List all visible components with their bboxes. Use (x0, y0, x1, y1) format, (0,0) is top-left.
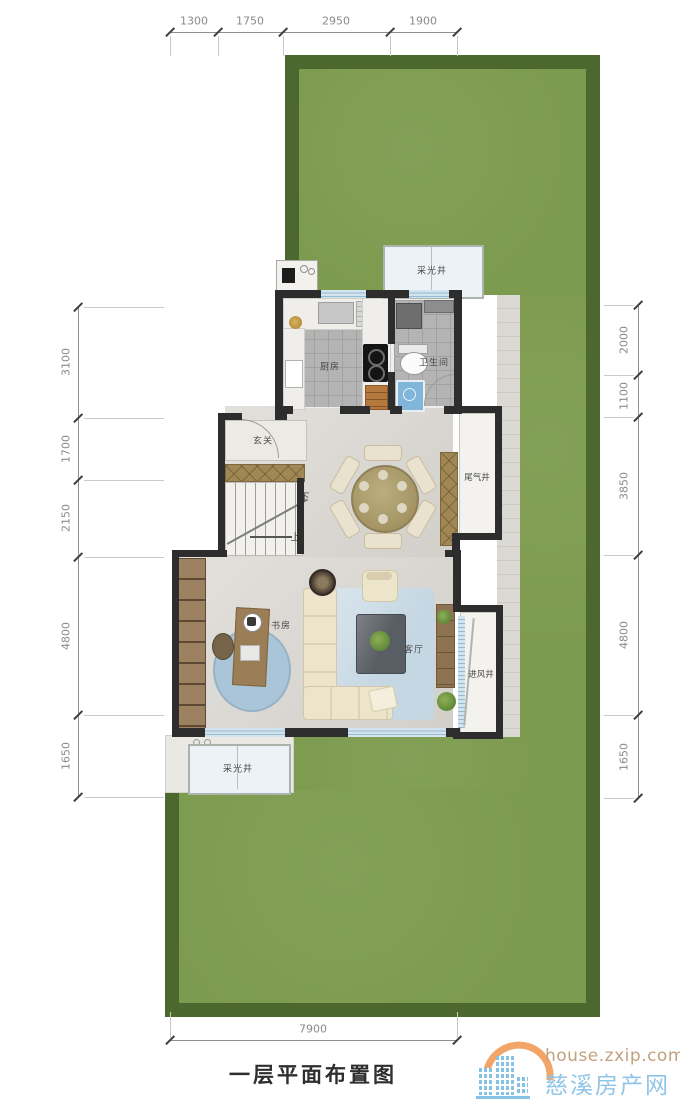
dim-ext (170, 36, 171, 56)
room-label-living: 客厅 (404, 643, 424, 656)
plate (359, 503, 369, 513)
dim-label: 3850 (618, 472, 631, 500)
plate (397, 503, 407, 513)
bathroom-window (409, 290, 450, 298)
washer-drum (403, 388, 416, 401)
dim-label: 7900 (299, 1023, 327, 1036)
room-label-exhaust-shaft: 尾气井 (464, 471, 490, 483)
stairs (225, 482, 303, 556)
burner (368, 349, 385, 366)
living-window-left (205, 728, 287, 737)
dim-ext (170, 1012, 171, 1038)
dining-chair (364, 533, 402, 549)
stairs-arrow (250, 536, 292, 538)
dim-label: 2950 (322, 15, 350, 28)
living-window-right (348, 728, 447, 737)
wall (297, 478, 304, 554)
logo-url-text: house.zxip.com (545, 1046, 680, 1066)
hedge-left-upper (285, 55, 299, 295)
logo-baseline (476, 1096, 530, 1099)
dim-label: 1650 (60, 742, 73, 770)
wall (452, 533, 502, 540)
hedge-bottom (165, 1003, 600, 1017)
dim-label: 1300 (180, 15, 208, 28)
dim-ext (604, 305, 634, 306)
dim-ext (84, 307, 164, 308)
wall (285, 728, 349, 737)
armchair-back (366, 572, 392, 580)
hedge-left-lower (165, 790, 179, 1017)
wall (390, 406, 402, 414)
dim-line-bottom (170, 1040, 457, 1041)
dim-label: 1900 (409, 15, 437, 28)
desk-monitor (247, 617, 256, 626)
logo-site-text: 慈溪房产网 (545, 1066, 670, 1100)
page-title: 一层平面布置图 (229, 1059, 397, 1089)
wall (275, 290, 283, 415)
bathroom-vanity (396, 303, 422, 329)
room-label-bathroom: 卫生间 (419, 356, 449, 369)
chimney (282, 268, 295, 283)
wall (388, 296, 395, 344)
kitchen-window (321, 290, 367, 298)
light-well-top-label: 采光井 (417, 264, 447, 277)
bathroom-shelf (424, 300, 454, 313)
bookshelf (176, 558, 206, 734)
wall (388, 372, 395, 410)
dim-label: 1650 (618, 743, 631, 771)
desk-paper (240, 645, 260, 661)
kitchen-sink (318, 302, 354, 324)
dim-ext (84, 797, 164, 798)
dim-ext (390, 36, 391, 56)
plate (378, 514, 388, 524)
side-planter (309, 569, 336, 596)
shoe-cabinet (225, 464, 305, 482)
floor-plant (437, 692, 456, 711)
dim-ext (218, 36, 219, 56)
dim-ext (84, 557, 164, 558)
light-well-bottom-label: 采光井 (223, 762, 253, 775)
dim-label: 4800 (60, 622, 73, 650)
plate (359, 481, 369, 491)
dim-label: 2150 (60, 504, 73, 532)
logo-building (517, 1077, 528, 1095)
logo-building (496, 1056, 515, 1095)
dim-ext (604, 715, 634, 716)
office-chair (212, 633, 234, 660)
dim-ext (604, 798, 634, 799)
dining-cabinet (440, 452, 458, 546)
dim-label: 2000 (618, 326, 631, 354)
dim-ext (604, 417, 634, 418)
pan (289, 316, 302, 329)
vent-dot (300, 265, 308, 273)
wall (172, 550, 227, 557)
floor-plan-page: 厨房 卫生间 玄关 下 上 餐厅 尾气井 书房 (0, 0, 680, 1103)
plate (378, 470, 388, 480)
dim-ext (283, 36, 284, 56)
dim-ext (84, 715, 164, 716)
burner (368, 365, 385, 382)
room-label-study: 书房 (271, 619, 291, 632)
dim-label: 3100 (60, 348, 73, 376)
fridge (285, 360, 303, 388)
room-label-kitchen: 厨房 (320, 360, 340, 373)
wall (495, 406, 502, 540)
wall (340, 406, 370, 414)
dining-chair (364, 445, 402, 461)
dim-ext (84, 480, 164, 481)
wall (496, 605, 503, 739)
wall (172, 728, 207, 737)
hedge-right (586, 55, 600, 1017)
vent-dot (308, 268, 315, 275)
hedge-top (285, 55, 600, 69)
room-label-foyer: 玄关 (253, 434, 273, 447)
wall (218, 413, 225, 557)
dim-ext (457, 1012, 458, 1038)
dim-ext (457, 36, 458, 56)
dim-label: 1750 (236, 15, 264, 28)
wall (172, 550, 179, 737)
logo-building (479, 1068, 494, 1095)
wall (453, 732, 503, 739)
dim-label: 1700 (60, 435, 73, 463)
dim-ext (604, 555, 634, 556)
table-plant (370, 631, 390, 651)
plate (397, 481, 407, 491)
dim-line-top (170, 32, 457, 33)
lawn-right (520, 295, 586, 737)
dim-label: 1100 (618, 382, 631, 410)
lawn-bottom (179, 790, 586, 1003)
wall (454, 290, 462, 412)
dim-ext (604, 375, 634, 376)
wall (453, 550, 461, 612)
dim-label: 4800 (618, 621, 631, 649)
wall (275, 413, 287, 420)
dim-ext (84, 418, 164, 419)
room-label-air-inlet: 进风井 (468, 668, 494, 680)
cabinet-plant (437, 610, 451, 624)
dim-line-left (78, 307, 79, 797)
